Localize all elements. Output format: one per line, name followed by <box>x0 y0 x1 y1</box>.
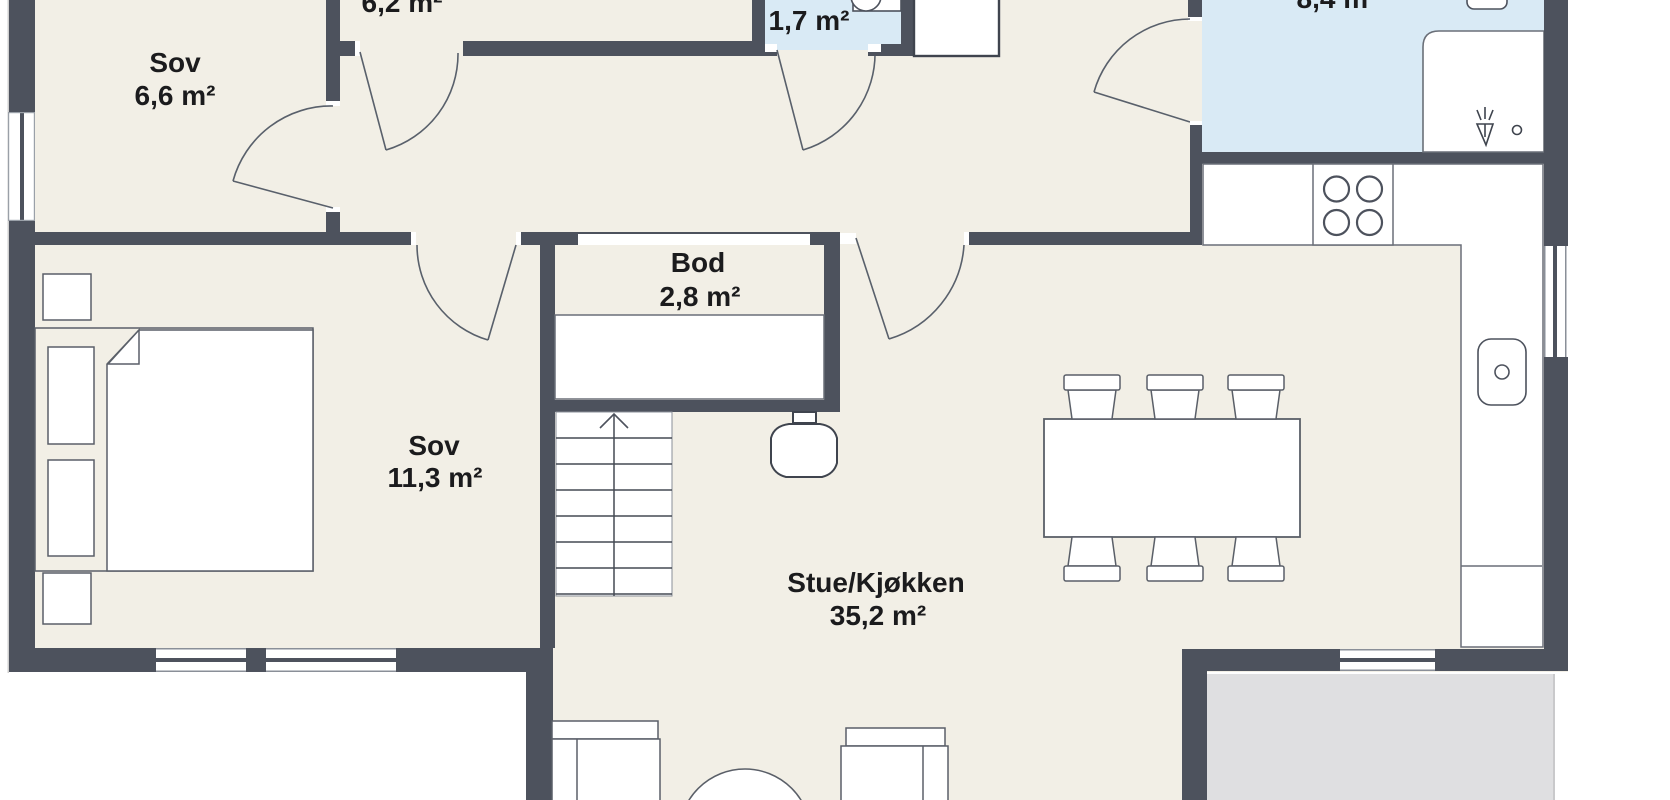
svg-text:35,2 m²: 35,2 m² <box>830 600 927 631</box>
svg-text:6,2 m²: 6,2 m² <box>362 0 443 18</box>
svg-text:11,3 m²: 11,3 m² <box>388 462 483 493</box>
svg-text:1,7 m²: 1,7 m² <box>769 5 850 36</box>
svg-text:Bod: Bod <box>671 247 725 278</box>
svg-text:2,8 m²: 2,8 m² <box>660 281 741 312</box>
svg-text:Sov: Sov <box>149 47 201 78</box>
svg-text:Sov: Sov <box>408 430 460 461</box>
svg-text:Stue/Kjøkken: Stue/Kjøkken <box>787 567 964 598</box>
svg-text:6,6 m²: 6,6 m² <box>135 80 216 111</box>
svg-text:8,4 m²: 8,4 m² <box>1297 0 1378 14</box>
